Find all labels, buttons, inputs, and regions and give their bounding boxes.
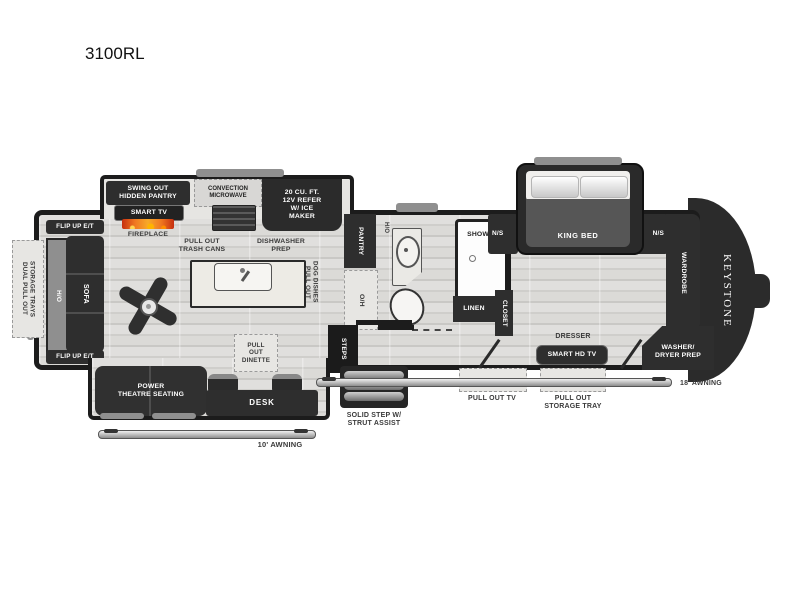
- step-tread: [344, 392, 404, 401]
- awning-10: [98, 430, 316, 439]
- pillow-right-icon: [580, 176, 628, 198]
- dual-pull-out-storage-trays: DUAL PULL OUT STORAGE TRAYS: [12, 240, 44, 338]
- floorplan-canvas: 3100RL KEYSTONE SWING OUT HIDDEN PANTRY …: [0, 0, 800, 600]
- roof-vent: [396, 203, 438, 212]
- pull-out-dinette: PULL OUT DINETTE: [234, 334, 278, 372]
- faucet-base-icon: [240, 268, 245, 273]
- pillow-left-icon: [531, 176, 579, 198]
- page-title: 3100RL: [85, 44, 145, 64]
- convection-microwave: CONVECTION MICROWAVE: [194, 179, 262, 207]
- solid-step-label: SOLID STEP W/ STRUT ASSIST: [312, 412, 436, 429]
- bed-slide-trim: [534, 157, 622, 165]
- bath-wall-bottom: [378, 325, 414, 330]
- slide-trim: [196, 169, 284, 177]
- closet: CLOSET: [495, 290, 513, 336]
- solid-step: [340, 366, 408, 408]
- fireplace-flames-icon: [122, 219, 174, 229]
- range-icon: [212, 205, 256, 231]
- theatre-seating: POWER THEATRE SEATING: [95, 366, 207, 416]
- dog-dishes-label: PULL OUT DOG DISHES: [300, 254, 322, 310]
- nightstand-left: N/S: [488, 214, 518, 254]
- trash-cans-label: PULL OUT TRASH CANS: [164, 238, 240, 254]
- sofa: SOFA: [66, 236, 104, 352]
- awning-10-label: 10' AWNING: [240, 441, 320, 450]
- hidden-pantry: SWING OUT HIDDEN PANTRY: [106, 181, 190, 205]
- pull-out-storage-tray-label: PULL OUT STORAGE TRAY: [528, 395, 618, 412]
- linen-cabinet: LINEN: [453, 296, 495, 322]
- bath-sink-icon: [396, 236, 420, 268]
- king-bed-label: KING BED: [526, 231, 630, 240]
- awning-10-cap-left: [104, 429, 118, 433]
- hitch-pin: [746, 274, 770, 308]
- awning-18-label: 18' AWNING: [680, 380, 740, 388]
- refrigerator: 20 CU. FT. 12V REFER W/ ICE MAKER: [262, 179, 342, 231]
- wardrobe: WARDROBE: [666, 214, 700, 332]
- pocket-door: [412, 329, 452, 331]
- dishwasher-prep-label: DISHWASHER PREP: [246, 238, 316, 254]
- awning-18-cap-left: [322, 377, 336, 381]
- smart-hd-tv: SMART HD TV: [536, 345, 608, 365]
- awning-18-cap-right: [652, 377, 666, 381]
- pantry: PANTRY: [344, 214, 376, 268]
- ceiling-fan-icon: [112, 270, 184, 342]
- theatre-footrest-right: [152, 413, 196, 419]
- bath-sink-drain-icon: [404, 248, 408, 252]
- keystone-logo: KEYSTONE: [716, 238, 738, 344]
- awning-18: [316, 378, 672, 387]
- bath-ho-label: H/O: [379, 222, 392, 250]
- awning-10-cap-right: [294, 429, 308, 433]
- pull-out-tv-label: PULL OUT TV: [446, 395, 538, 403]
- flip-up-et-top: FLIP UP E/T: [46, 220, 104, 234]
- theatre-footrest-left: [100, 413, 144, 419]
- corridor-wall: [356, 320, 412, 325]
- dresser-label: DRESSER: [538, 333, 608, 341]
- shower-drain-icon: [469, 255, 476, 262]
- desk: DESK: [206, 390, 318, 416]
